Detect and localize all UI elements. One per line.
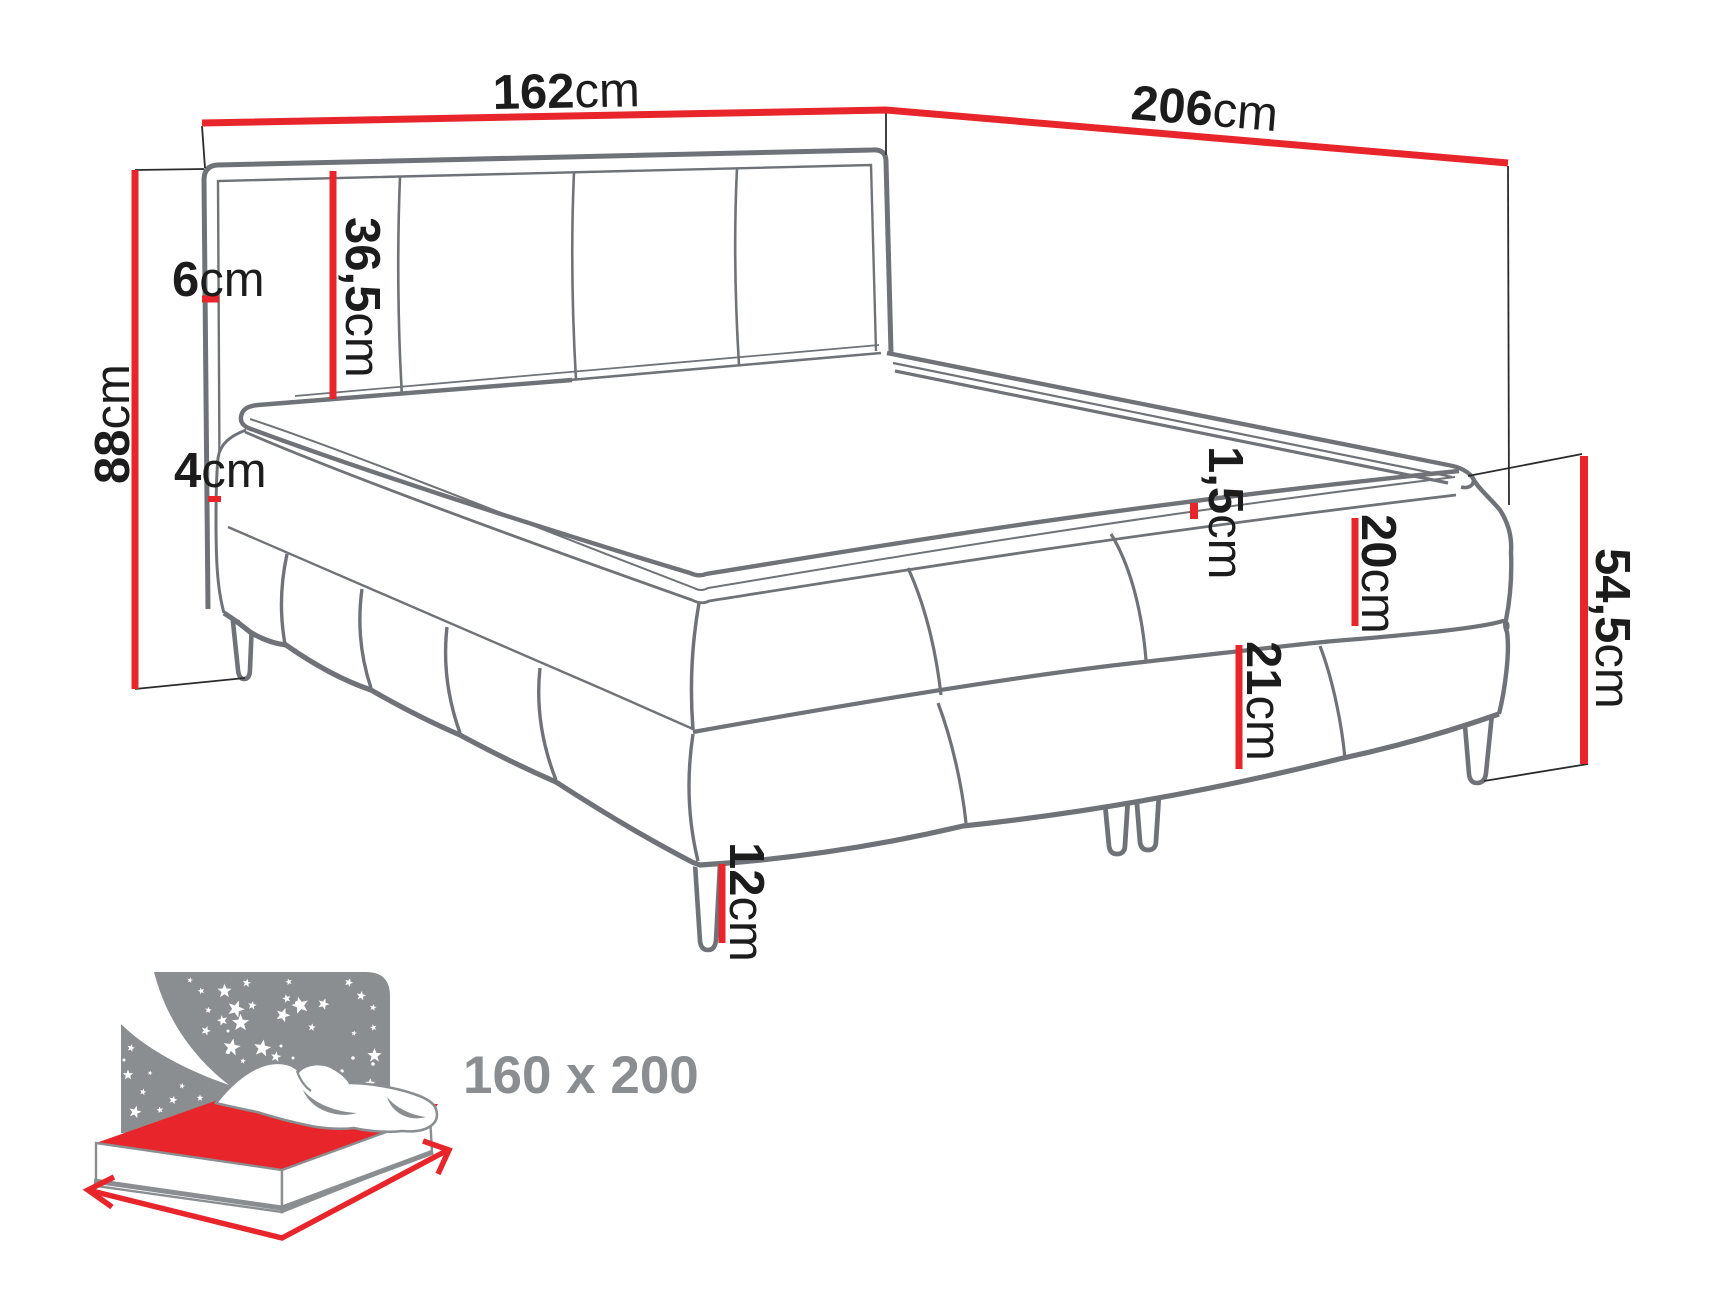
- svg-text:4cm: 4cm: [174, 444, 267, 498]
- svg-text:160 x 200: 160 x 200: [463, 1046, 699, 1105]
- svg-text:1,5cm: 1,5cm: [1198, 446, 1252, 579]
- svg-text:88cm: 88cm: [86, 364, 140, 484]
- svg-text:54,5cm: 54,5cm: [1585, 548, 1639, 709]
- svg-text:6cm: 6cm: [172, 253, 265, 307]
- svg-text:162cm: 162cm: [492, 63, 640, 120]
- svg-text:20cm: 20cm: [1351, 514, 1405, 634]
- svg-text:21cm: 21cm: [1236, 641, 1290, 761]
- svg-text:36,5cm: 36,5cm: [335, 217, 389, 378]
- svg-text:12cm: 12cm: [719, 842, 773, 962]
